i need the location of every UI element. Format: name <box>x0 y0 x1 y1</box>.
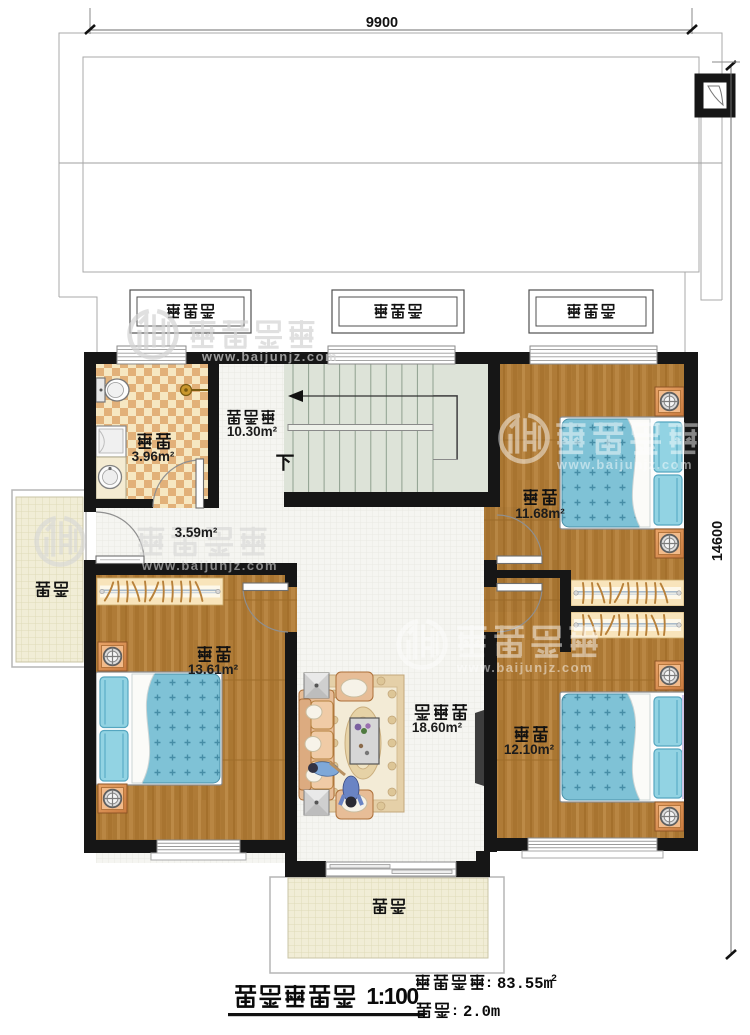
svg-text:2: 2 <box>551 974 557 985</box>
svg-text:www.baijunjz.com: www.baijunjz.com <box>201 349 338 364</box>
svg-text:www.baijunjz.com: www.baijunjz.com <box>556 457 693 472</box>
svg-text:3.96m²: 3.96m² <box>132 449 175 464</box>
svg-text:www.baijunjz.com: www.baijunjz.com <box>456 660 593 675</box>
svg-text:83.55m: 83.55m <box>497 975 553 993</box>
svg-text:www.baijunjz.com: www.baijunjz.com <box>141 558 278 573</box>
svg-text:12.10m²: 12.10m² <box>504 742 555 757</box>
svg-text:3.59m²: 3.59m² <box>175 525 218 540</box>
svg-text:10.30m²: 10.30m² <box>227 424 278 439</box>
svg-text:2.0m: 2.0m <box>463 1003 500 1021</box>
svg-text::: : <box>487 974 492 991</box>
svg-text:11.68m²: 11.68m² <box>515 506 565 521</box>
svg-text:13.61m²: 13.61m² <box>188 662 239 677</box>
svg-text:18.60m²: 18.60m² <box>412 720 463 735</box>
svg-text:1:100: 1:100 <box>366 983 418 1009</box>
svg-text:9900: 9900 <box>366 15 398 31</box>
svg-text::: : <box>453 1002 458 1019</box>
svg-text:14600: 14600 <box>710 521 726 561</box>
